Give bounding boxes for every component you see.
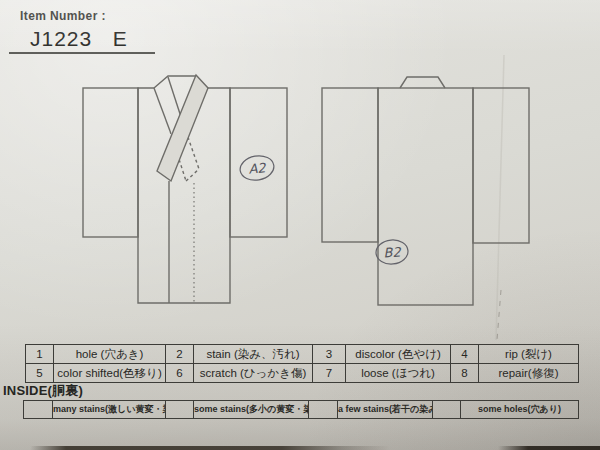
inside-option-cell: many stains(激しい黄変・染み) <box>53 401 166 419</box>
table-row: 1 hole (穴あき) 2 stain (染み、汚れ) 3 discolor … <box>26 345 579 364</box>
inside-condition-table: many stains(激しい黄変・染み) some stains(多小の黄変・… <box>23 400 579 419</box>
defect-code-cell: 7 <box>313 364 346 383</box>
inside-option-cell: some holes(穴あり) <box>461 401 579 419</box>
defect-label-cell: hole (穴あき) <box>54 345 166 364</box>
inside-option-cell: some stains(多小の黄変・染み) <box>194 401 309 419</box>
defect-code-cell: 6 <box>166 364 194 383</box>
defect-code-cell: 1 <box>26 345 54 364</box>
scanned-kimono-condition-sheet: Item Number : J1223 E <box>0 0 600 450</box>
defect-label-cell: scratch (ひっかき傷) <box>194 364 313 383</box>
back-left-sleeve <box>322 88 378 242</box>
kimono-front-diagram <box>83 75 287 303</box>
back-body <box>378 88 473 305</box>
table-row: 5 color shifted(色移り) 6 scratch (ひっかき傷) 7… <box>26 364 579 383</box>
defect-label-cell: rip (裂け) <box>479 345 579 364</box>
defect-label-cell: loose (ほつれ) <box>346 364 451 383</box>
annotation-front-text: A2 <box>248 160 267 177</box>
kimono-diagrams: A2 B2 <box>0 0 600 340</box>
table-row: many stains(激しい黄変・染み) some stains(多小の黄変・… <box>24 401 579 419</box>
defect-code-cell: 3 <box>313 345 346 364</box>
inside-checkbox-cell <box>309 401 338 419</box>
front-left-sleeve <box>83 88 138 237</box>
front-collar-over-band <box>157 75 208 181</box>
defect-code-cell: 4 <box>451 345 479 364</box>
defect-label-cell: repair(修復) <box>479 364 579 383</box>
defect-label-cell: color shifted(色移り) <box>54 364 166 383</box>
annotation-front-mark: A2 <box>238 153 276 183</box>
defect-code-cell: 8 <box>451 364 479 383</box>
defect-code-cell: 2 <box>166 345 194 364</box>
photo-bottom-shadow <box>0 446 600 450</box>
defect-label-cell: discolor (色やけ) <box>346 345 451 364</box>
inside-checkbox-cell <box>24 401 53 419</box>
back-collar <box>400 77 445 88</box>
inside-option-cell: a few stains(若干の染み) <box>338 401 433 419</box>
defect-code-cell: 5 <box>26 364 54 383</box>
inside-checkbox-cell <box>166 401 194 419</box>
annotation-back-mark: B2 <box>375 239 409 266</box>
fold-crease-line <box>496 55 504 340</box>
inside-checkbox-cell <box>433 401 461 419</box>
front-collar-top <box>154 76 196 88</box>
defect-code-table: 1 hole (穴あき) 2 stain (染み、汚れ) 3 discolor … <box>25 344 579 383</box>
defect-label-cell: stain (染み、汚れ) <box>194 345 313 364</box>
annotation-back-text: B2 <box>383 244 402 260</box>
inside-section-title: INSIDE(胴裏) <box>3 382 83 400</box>
